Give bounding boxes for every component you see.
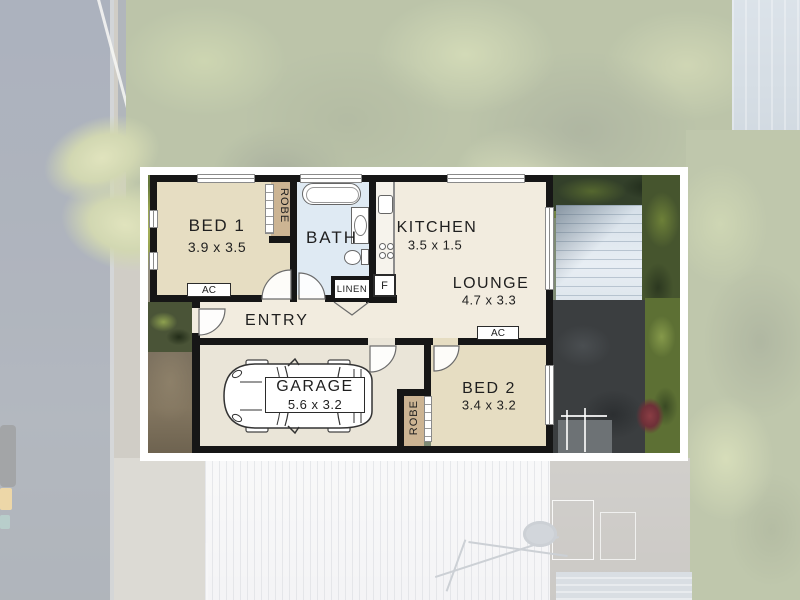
wall-segment xyxy=(150,228,157,252)
linen-label-box: LINEN xyxy=(331,276,373,302)
robe-label-bed2: ROBE xyxy=(408,400,420,435)
bathtub-inner xyxy=(306,187,359,203)
wall-segment xyxy=(192,333,200,446)
fridge-box: F xyxy=(373,274,396,297)
cooktop-burner xyxy=(387,252,394,259)
window xyxy=(545,365,554,425)
room-label-bed1: BED 1 xyxy=(189,216,246,236)
fridge-label: F xyxy=(381,280,388,292)
room-label-bath: BATH xyxy=(306,228,358,248)
fade-overlay-top xyxy=(0,0,800,167)
room-label-garage: GARAGE xyxy=(276,377,353,397)
wall-segment xyxy=(150,175,157,210)
door-opening-floor xyxy=(433,338,458,345)
ac-label: AC xyxy=(491,328,505,339)
door-opening-floor xyxy=(297,295,325,302)
room-dims-garage: 5.6 x 3.2 xyxy=(288,397,342,413)
window xyxy=(447,174,525,183)
linen-label: LINEN xyxy=(337,284,367,295)
robe-door xyxy=(424,396,432,442)
door-opening-floor xyxy=(262,295,290,302)
listing-aerial-floorplan-image: BED 1 3.9 x 3.5 BATH KITCHEN 3.5 x 1.5 L… xyxy=(0,0,800,600)
room-dims-bed1: 3.9 x 3.5 xyxy=(188,239,246,255)
robe-label-bed1: ROBE xyxy=(278,188,290,223)
wall-segment xyxy=(290,182,297,302)
wall-segment xyxy=(546,182,553,207)
wall-segment xyxy=(546,290,553,365)
fade-overlay-right xyxy=(688,167,800,461)
ac-unit-bed1: AC xyxy=(187,283,231,297)
window xyxy=(300,174,362,183)
robe-door xyxy=(265,184,274,234)
room-kitchen-lounge xyxy=(376,182,546,338)
wall-segment xyxy=(150,175,197,182)
ac-label: AC xyxy=(202,285,216,296)
wall-segment xyxy=(192,338,368,345)
fade-overlay-bottom xyxy=(0,461,800,600)
window xyxy=(149,210,158,228)
toilet-tank xyxy=(361,249,369,265)
kitchen-sink xyxy=(378,195,393,214)
wall-segment xyxy=(362,175,447,182)
garage-label-box: GARAGE 5.6 x 3.2 xyxy=(265,377,365,413)
door-opening-floor xyxy=(368,338,395,345)
wall-segment xyxy=(192,302,200,308)
wall-segment xyxy=(397,389,404,446)
wall-segment xyxy=(546,425,553,446)
window xyxy=(197,174,255,183)
wall-segment xyxy=(255,175,300,182)
wall-segment xyxy=(150,270,157,302)
room-dims-kitchen: 3.5 x 1.5 xyxy=(408,238,462,253)
window xyxy=(545,207,554,290)
wall-segment xyxy=(192,446,553,453)
bathtub xyxy=(302,183,361,205)
room-label-kitchen: KITCHEN xyxy=(397,219,478,237)
cooktop-burner xyxy=(387,243,394,250)
room-label-bed2: BED 2 xyxy=(462,380,516,398)
room-label-lounge: LOUNGE xyxy=(453,275,530,293)
room-dims-bed2: 3.4 x 3.2 xyxy=(462,398,516,413)
wall-segment xyxy=(525,175,553,182)
door-opening-floor xyxy=(192,308,200,333)
toilet-bowl xyxy=(344,250,361,265)
window xyxy=(149,252,158,270)
fade-overlay-left xyxy=(0,167,140,461)
cooktop-burner xyxy=(379,243,386,250)
wall-segment xyxy=(424,338,431,395)
cooktop-burner xyxy=(379,252,386,259)
room-label-entry: ENTRY xyxy=(245,312,309,330)
room-dims-lounge: 4.7 x 3.3 xyxy=(462,293,516,308)
ac-unit-lounge: AC xyxy=(477,326,519,340)
